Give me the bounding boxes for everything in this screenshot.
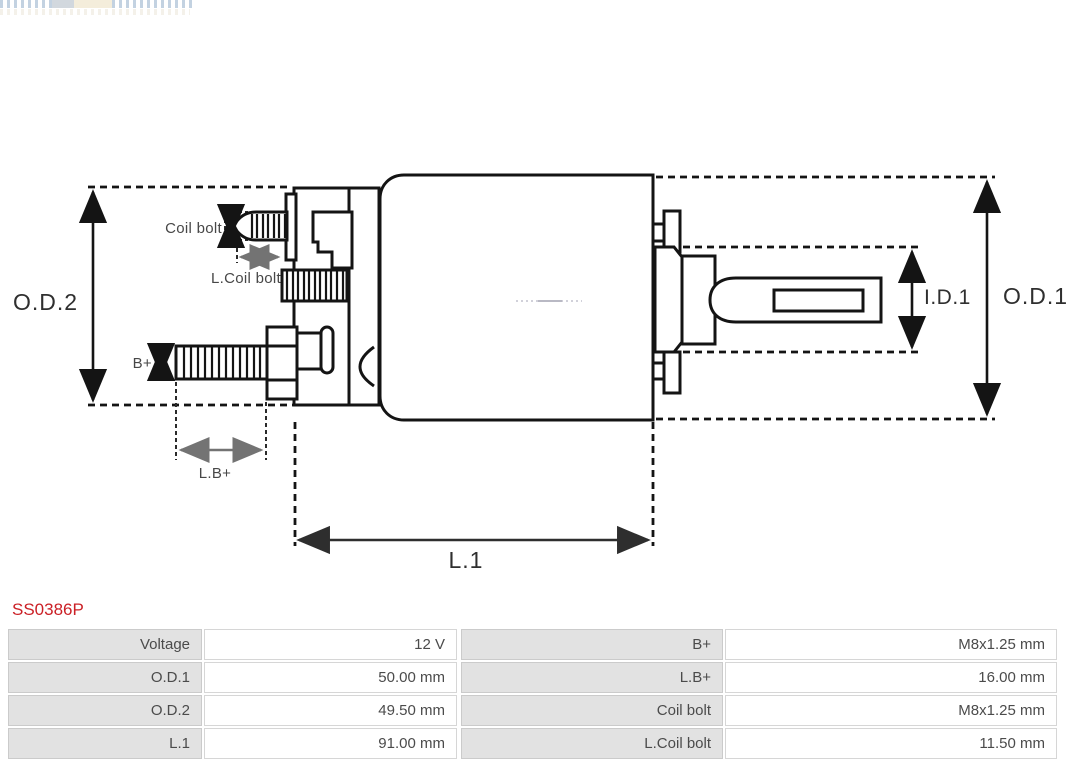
spec-value: M8x1.25 mm bbox=[725, 695, 1057, 726]
solenoid-body bbox=[380, 175, 653, 420]
spec-label: B+ bbox=[461, 629, 723, 660]
spec-label: L.B+ bbox=[461, 662, 723, 693]
coil-bolt-shape bbox=[234, 212, 287, 240]
spec-value: 12 V bbox=[204, 629, 457, 660]
spec-label: Voltage bbox=[8, 629, 202, 660]
od1-label: O.D.1 bbox=[1003, 283, 1068, 309]
spec-label: L.Coil bolt bbox=[461, 728, 723, 759]
spec-label: O.D.1 bbox=[8, 662, 202, 693]
spec-value: 50.00 mm bbox=[204, 662, 457, 693]
spec-value: 16.00 mm bbox=[725, 662, 1057, 693]
l-coil-bolt-label: L.Coil bolt bbox=[211, 270, 282, 287]
plunger-shaft bbox=[653, 211, 881, 393]
table-row: O.D.1 50.00 mm L.B+ 16.00 mm bbox=[8, 662, 1057, 693]
spec-table: Voltage 12 V B+ M8x1.25 mm O.D.1 50.00 m… bbox=[8, 629, 1057, 759]
spec-sheet: O.D.2 O.D.1 I.D.1 L.1 Coil bolt L.Coil b… bbox=[0, 0, 1080, 767]
part-number: SS0386P bbox=[12, 600, 84, 620]
table-row: O.D.2 49.50 mm Coil bolt M8x1.25 mm bbox=[8, 695, 1057, 726]
coil-bolt-label: Coil bolt bbox=[165, 220, 222, 237]
od2-label: O.D.2 bbox=[13, 289, 78, 315]
table-row: Voltage 12 V B+ M8x1.25 mm bbox=[8, 629, 1057, 660]
id1-label: I.D.1 bbox=[924, 286, 971, 309]
spec-label: L.1 bbox=[8, 728, 202, 759]
spec-value: 11.50 mm bbox=[725, 728, 1057, 759]
solenoid-diagram: O.D.2 O.D.1 I.D.1 L.1 Coil bolt L.Coil b… bbox=[0, 0, 1080, 600]
spec-label: O.D.2 bbox=[8, 695, 202, 726]
l-b-plus-label: L.B+ bbox=[199, 465, 231, 482]
table-row: L.1 91.00 mm L.Coil bolt 11.50 mm bbox=[8, 728, 1057, 759]
b-plus-label: B+ bbox=[133, 355, 152, 372]
spec-value: M8x1.25 mm bbox=[725, 629, 1057, 660]
spec-value: 49.50 mm bbox=[204, 695, 457, 726]
spec-label: Coil bolt bbox=[461, 695, 723, 726]
l1-label: L.1 bbox=[449, 547, 484, 573]
spec-value: 91.00 mm bbox=[204, 728, 457, 759]
